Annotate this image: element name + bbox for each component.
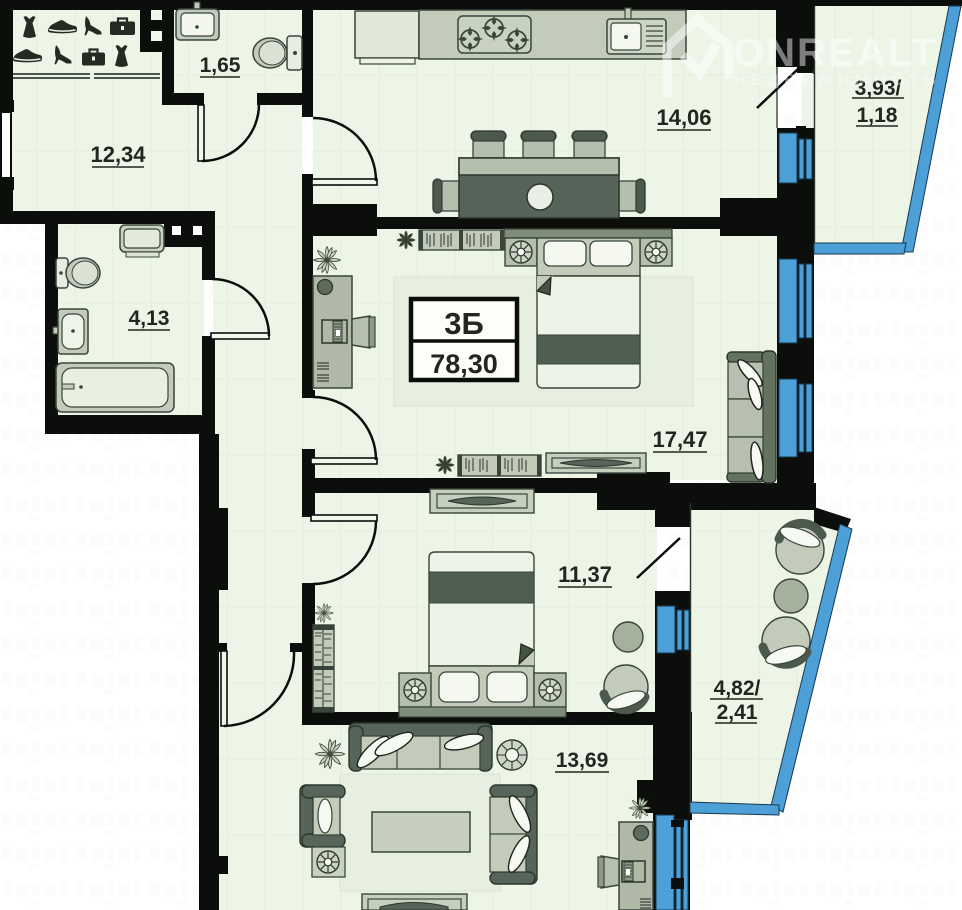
svg-text:4,82/: 4,82/: [714, 677, 761, 700]
svg-text:13,69: 13,69: [556, 749, 609, 772]
svg-text:4,13: 4,13: [129, 307, 170, 330]
svg-text:78,30: 78,30: [430, 349, 498, 379]
svg-text:1,18: 1,18: [857, 104, 898, 127]
svg-text:14,06: 14,06: [656, 105, 711, 130]
svg-text:НЕДВИЖИМОСТЬ: НЕДВИЖИМОСТЬ: [734, 72, 941, 89]
svg-text:17,47: 17,47: [652, 427, 707, 452]
svg-text:ONREALT: ONREALT: [733, 31, 937, 75]
svg-text:11,37: 11,37: [558, 562, 612, 587]
svg-text:12,34: 12,34: [90, 142, 146, 167]
svg-text:3Б: 3Б: [444, 306, 484, 341]
svg-text:2,41: 2,41: [717, 701, 758, 724]
svg-text:1,65: 1,65: [200, 54, 241, 77]
